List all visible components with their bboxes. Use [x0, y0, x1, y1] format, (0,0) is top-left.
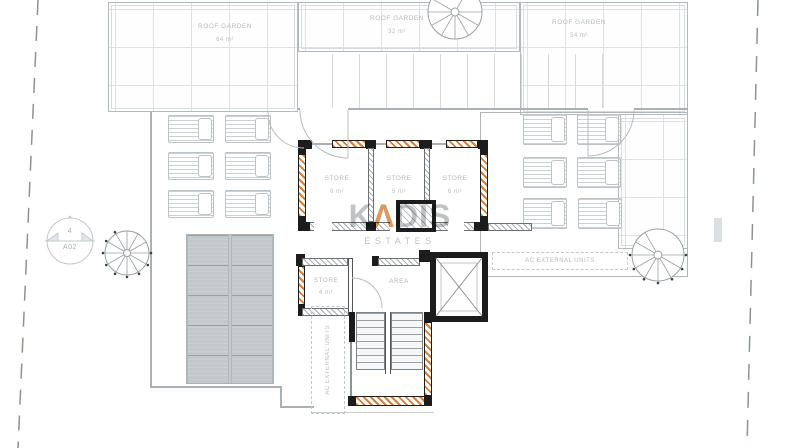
- sun-lounger: [168, 115, 214, 143]
- sun-lounger: [225, 152, 271, 180]
- room-label: STORE: [314, 278, 339, 285]
- wall-segment: [424, 312, 432, 322]
- wall-segment: [348, 396, 356, 406]
- area-room-label: AREA: [376, 270, 422, 288]
- lounger-pillow: [605, 160, 619, 185]
- room-area: 54 m²: [529, 33, 629, 39]
- lounger-pillow: [606, 201, 620, 226]
- boundary-line-left: [18, 0, 38, 448]
- room-label: STORE: [443, 176, 468, 183]
- lounger-pillow: [255, 193, 269, 215]
- sun-lounger: [523, 157, 567, 188]
- watermark-lambda: Λ: [373, 198, 395, 234]
- wall-segment: [419, 250, 430, 262]
- room-area: 6 m²: [448, 189, 462, 195]
- wall-segment: [298, 222, 310, 231]
- sun-lounger: [578, 198, 622, 229]
- sun-lounger: [523, 114, 567, 145]
- room-label: ROOF GARDEN: [175, 24, 275, 31]
- terrace-edge-step: [280, 386, 282, 408]
- wall-segment: [349, 312, 355, 342]
- wall-stub: [714, 218, 722, 242]
- terrace-edge-left: [150, 112, 152, 388]
- room-area: 64 m²: [175, 37, 275, 43]
- pergola-louvers: [187, 235, 229, 383]
- sun-lounger: [225, 190, 271, 218]
- lounger-pillow: [198, 193, 212, 215]
- ac-units-zone-left: AC EXTERNAL UNITS: [311, 306, 345, 414]
- lounger-pillow: [255, 155, 269, 177]
- lounger-pillow: [551, 117, 565, 142]
- door-opening: [588, 108, 634, 110]
- exterior-wall: [424, 322, 432, 396]
- sun-lounger: [577, 114, 621, 145]
- stair-flight-right: [391, 312, 423, 370]
- sun-lounger: [168, 190, 214, 218]
- wall-segment: [378, 258, 420, 266]
- lounger-pillow: [198, 155, 212, 177]
- ac-units-zone-right: AC EXTERNAL UNITS: [492, 252, 628, 270]
- section-sheet: A02: [45, 244, 95, 251]
- floor-plan-canvas: ROOF GARDEN 64 m² ROOF GARDEN 32 m² ROOF…: [0, 0, 796, 448]
- store-room-4: STORE 4 m²: [305, 266, 347, 308]
- spiral-stair-left: [102, 231, 153, 278]
- ac-units-label: AC EXTERNAL UNITS: [525, 258, 595, 264]
- room-area: 4 m²: [319, 290, 333, 296]
- watermark-subtitle: ESTATES: [364, 236, 435, 246]
- room-area: 5 m²: [392, 189, 406, 195]
- watermark-brand: KΛDIS: [349, 200, 452, 232]
- wall-segment: [424, 396, 432, 406]
- section-number: 4: [45, 228, 95, 235]
- pergola-deck: [186, 234, 274, 384]
- room-label: ROOF GARDEN: [529, 20, 629, 27]
- watermark: KΛDIS ESTATES: [316, 200, 484, 246]
- wall-segment: [302, 258, 348, 266]
- roof-garden-right-label: ROOF GARDEN 54 m²: [529, 20, 629, 39]
- wall-stub: [488, 223, 532, 231]
- room-label: STORE: [387, 176, 412, 183]
- terrace-edge-bottom: [150, 386, 282, 388]
- exterior-wall: [298, 266, 305, 308]
- room-label: STORE: [325, 176, 350, 183]
- lounger-pillow: [198, 118, 212, 140]
- room-area: 6 m²: [330, 189, 344, 195]
- sun-lounger: [577, 157, 621, 188]
- exterior-wall: [348, 396, 432, 406]
- room-label: ROOF GARDEN: [347, 16, 447, 23]
- window-sill: [386, 140, 420, 148]
- roof-garden-left-label: ROOF GARDEN 64 m²: [175, 24, 275, 43]
- window-sill: [332, 140, 366, 148]
- lounger-pillow: [605, 117, 619, 142]
- wall-segment: [480, 148, 488, 155]
- pergola-louvers: [231, 235, 273, 383]
- ac-units-label: AC EXTERNAL UNITS: [325, 325, 331, 395]
- room-label: AREA: [389, 278, 409, 285]
- elevator-shaft: [430, 252, 488, 322]
- sun-lounger: [225, 115, 271, 143]
- room-area: 32 m²: [347, 29, 447, 35]
- lounger-pillow: [551, 160, 565, 185]
- window-sill: [446, 140, 478, 148]
- stair-wall: [350, 342, 352, 402]
- wall-segment: [312, 143, 332, 145]
- boundary-line-right: [747, 0, 758, 448]
- partition-wall: [348, 258, 353, 316]
- door-opening: [300, 108, 348, 110]
- roof-garden-left: [108, 2, 298, 112]
- wall-segment: [298, 148, 306, 155]
- wall-segment: [376, 143, 386, 145]
- exterior-wall: [298, 148, 306, 224]
- lounger-pillow: [255, 118, 269, 140]
- roof-garden-middle-label: ROOF GARDEN 32 m²: [347, 16, 447, 35]
- pergola-beams: [332, 54, 604, 108]
- stair-flight-left: [356, 312, 385, 370]
- sun-lounger: [168, 152, 214, 180]
- wall-segment: [432, 143, 446, 145]
- lounger-pillow: [551, 201, 565, 226]
- terrace-edge-step: [280, 406, 314, 408]
- section-marker: 4 A02: [45, 228, 95, 251]
